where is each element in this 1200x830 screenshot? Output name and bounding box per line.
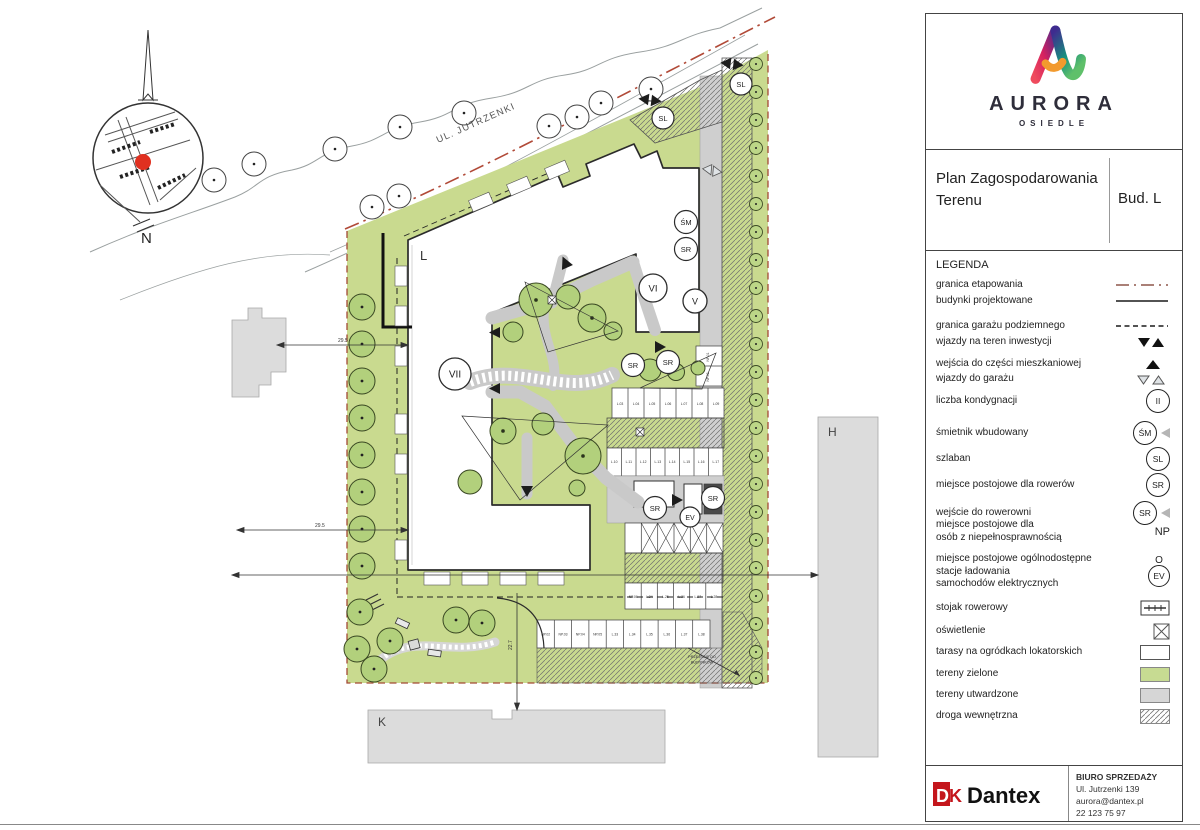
legend-label: wjazdy do garażu: [936, 373, 1014, 386]
dantex-wordmark: Dantex: [967, 783, 1041, 808]
legend-label: miejsce postojowe dla rowerów: [936, 479, 1074, 492]
legend-label: szlaban: [936, 453, 970, 466]
sm-circle-label: ŚM: [680, 218, 691, 227]
parking-stall-label: NP.03: [559, 633, 568, 637]
legend-label: tereny zielone: [936, 668, 998, 681]
legend-label: oświetlenie: [936, 625, 985, 638]
paved-swatch: [1140, 688, 1170, 703]
parking-stall-label: L.16: [698, 460, 705, 464]
north-label: N: [141, 230, 152, 247]
legend-item: szlaban SL: [936, 447, 1170, 471]
legend-item: droga wewnętrzna: [936, 709, 1170, 724]
np-text-icon: NP: [1155, 526, 1170, 538]
legend-item: wjazdy na teren inwestycji: [936, 336, 1170, 349]
building-label-l: L: [420, 248, 427, 263]
legend-label: stojak rowerowy: [936, 602, 1008, 615]
building-label-k: K: [378, 715, 386, 729]
dim-label: 29.5: [315, 523, 325, 529]
parking-stall-label: L.08: [697, 402, 704, 406]
dash-dot-line-icon: [1114, 281, 1170, 289]
office-address: Ul. Jutrzenki 139: [1076, 783, 1157, 795]
parking-stall-label: L.11: [626, 460, 632, 464]
legend-label: miejsce postojowe ogólnodostępne stacje …: [936, 553, 1092, 591]
parking-stall-label: L.17: [712, 460, 719, 464]
parking-stall-label: L.12: [640, 460, 647, 464]
legend-label: granica etapowania: [936, 279, 1023, 292]
parking-stall-label: L.03: [617, 402, 624, 406]
storey-label-vii: VII: [449, 370, 461, 381]
sr-circle-label: SR: [663, 358, 674, 367]
lighting-icon: [1153, 623, 1170, 640]
legend-item: stojak rowerowy: [936, 600, 1170, 616]
dim-label: 22.7: [508, 640, 514, 650]
drawing-title-section: Plan Zagospodarowania Terenu Bud. L: [926, 150, 1182, 251]
legend-item: śmietnik wbudowany ŚM: [936, 421, 1170, 445]
site-plan-svg: L.03 L.04 L.05 L.06 L.07 L.08 L.09 L.10 …: [0, 0, 925, 830]
site-plan: L.03 L.04 L.05 L.06 L.07 L.08 L.09 L.10 …: [0, 0, 925, 830]
divider: [1109, 158, 1110, 243]
office-phone: 22 123 75 97: [1076, 807, 1157, 819]
legend-label: miejsce postojowe dla osób z niepełnospr…: [936, 519, 1062, 544]
bike-rack-icon: [1140, 600, 1170, 616]
dantex-mark-k: K: [949, 786, 962, 806]
brand-name: AURORA: [926, 93, 1182, 116]
green-swatch: [1140, 667, 1170, 682]
parking-stall-label: L.04: [633, 402, 640, 406]
legend-label: śmietnik wbudowany: [936, 427, 1028, 440]
sr-circle-label: SR: [681, 245, 692, 254]
legend-item: miejsce postojowe dla rowerów SR: [936, 473, 1170, 497]
parking-stall-label: L.13: [654, 460, 661, 464]
legend-item: tereny utwardzone: [936, 688, 1170, 703]
sl-circle-label: SL: [658, 114, 667, 123]
parking-stall-label: L.37: [681, 633, 688, 637]
parking-stall-label: L.35: [646, 633, 653, 637]
hatch-swatch: [1140, 709, 1170, 724]
ev-circle-icon: EV: [1148, 565, 1170, 587]
ev-o-mark: O: [1155, 556, 1163, 565]
legend-heading: LEGENDA: [936, 259, 989, 271]
parking-stall-label: NP.05: [593, 633, 602, 637]
legend-item: granica garażu podziemnego: [936, 320, 1170, 333]
street-label: UL. JUTRZENKI: [435, 101, 517, 146]
footer: D K Dantex BIURO SPRZEDAŻY Ul. Jutrzenki…: [925, 765, 1183, 822]
parking-stall-label: L.15: [683, 460, 690, 464]
sl-circle-icon: SL: [1146, 447, 1170, 471]
legend-item: miejsce postojowe ogólnodostępne stacje …: [936, 553, 1170, 591]
terrace-swatch: [1140, 645, 1170, 660]
dantex-mark-d: D: [936, 786, 949, 806]
office-email[interactable]: aurora@dantex.pl: [1076, 795, 1157, 807]
legend-label: tereny utwardzone: [936, 689, 1018, 702]
brand-subtitle: OSIEDLE: [926, 119, 1182, 128]
legend-label: droga wewnętrzna: [936, 710, 1018, 723]
building-label-h: H: [828, 425, 837, 439]
dim-label: 29.5: [338, 338, 348, 344]
parking-stall-label: L.38: [698, 633, 705, 637]
legend-item: oświetlenie: [936, 623, 1170, 640]
legend-label: tarasy na ogródkach lokatorskich: [936, 646, 1082, 659]
outline-triangles-icon: [1136, 373, 1170, 385]
office-label: BIURO SPRZEDAŻY: [1076, 771, 1157, 783]
parking-stall-label: L.36: [663, 633, 670, 637]
title-block-panel: AURORA OSIEDLE Plan Zagospodarowania Ter…: [925, 13, 1183, 822]
parking-stall-label: L.10: [611, 460, 618, 464]
legend-item: tereny zielone: [936, 667, 1170, 682]
sr-circle-label: SR: [650, 504, 661, 513]
legend-label: budynki projektowane: [936, 295, 1033, 308]
legend-section: LEGENDA granica etapowania budynki proje…: [926, 251, 1182, 766]
filled-triangle-up-icon: [1136, 358, 1170, 370]
legend-label: wejścia do części mieszkaniowej: [936, 358, 1081, 371]
legend-item: miejsce postojowe dla osób z niepełnospr…: [936, 519, 1170, 544]
page: L.03 L.04 L.05 L.06 L.07 L.08 L.09 L.10 …: [0, 0, 1200, 830]
legend-label: wejście do rowerowni: [936, 507, 1031, 520]
legend-item: wejścia do części mieszkaniowej: [936, 358, 1170, 371]
building-ref: Bud. L: [1118, 190, 1161, 207]
legend-item: wjazdy do garażu: [936, 373, 1170, 386]
storey-label-v: V: [692, 297, 698, 307]
dantex-logo: D K Dantex: [926, 766, 1069, 821]
storeys-circle-icon: II: [1146, 389, 1170, 413]
parking-stall-label: L.07: [681, 402, 688, 406]
parking-stall-label: L.06: [665, 402, 672, 406]
parking-stall-label: L.14: [669, 460, 676, 464]
legend-item: tarasy na ogródkach lokatorskich: [936, 645, 1170, 660]
sales-office-contact: BIURO SPRZEDAŻY Ul. Jutrzenki 139 aurora…: [1076, 771, 1157, 819]
sl-circle-label: SL: [736, 80, 745, 89]
storey-label-vi: VI: [649, 284, 658, 295]
parking-stall-label: L.33: [612, 633, 619, 637]
filled-triangles-icon: [1136, 336, 1170, 348]
legend-label: wjazdy na teren inwestycji: [936, 336, 1052, 349]
legend-item: granica etapowania: [936, 279, 1170, 292]
aurora-logo-icon: [1018, 22, 1090, 86]
sr-circle-label: SR: [628, 361, 639, 370]
drawing-title: Plan Zagospodarowania Terenu: [936, 168, 1104, 212]
svg-text:PRZEJŚCIE DO: PRZEJŚCIE DO: [688, 654, 716, 659]
brand-section: AURORA OSIEDLE: [926, 14, 1182, 150]
parking-stall-label: NP.04: [576, 633, 585, 637]
legend-label: granica garażu podziemnego: [936, 320, 1065, 333]
sm-circle-icon: ŚM: [1133, 421, 1157, 445]
page-frame-line: [0, 824, 1200, 825]
dashed-line-icon: [1114, 322, 1170, 330]
sr-circle-label: SR: [708, 494, 719, 503]
legend-item: budynki projektowane: [936, 295, 1170, 308]
parking-stall-label: L.05: [649, 402, 656, 406]
legend-label: liczba kondygnacji: [936, 395, 1017, 408]
parking-stall-label: L.09: [713, 402, 720, 406]
parking-stall-label: L.34: [629, 633, 636, 637]
pointer-icon: [1161, 508, 1170, 518]
location-dot: [135, 154, 151, 170]
solid-line-icon: [1114, 297, 1170, 305]
legend-item: liczba kondygnacji II: [936, 389, 1170, 413]
sr-circle-icon: SR: [1146, 473, 1170, 497]
ev-circle-label: EV: [685, 515, 695, 522]
pointer-icon: [1161, 428, 1170, 438]
